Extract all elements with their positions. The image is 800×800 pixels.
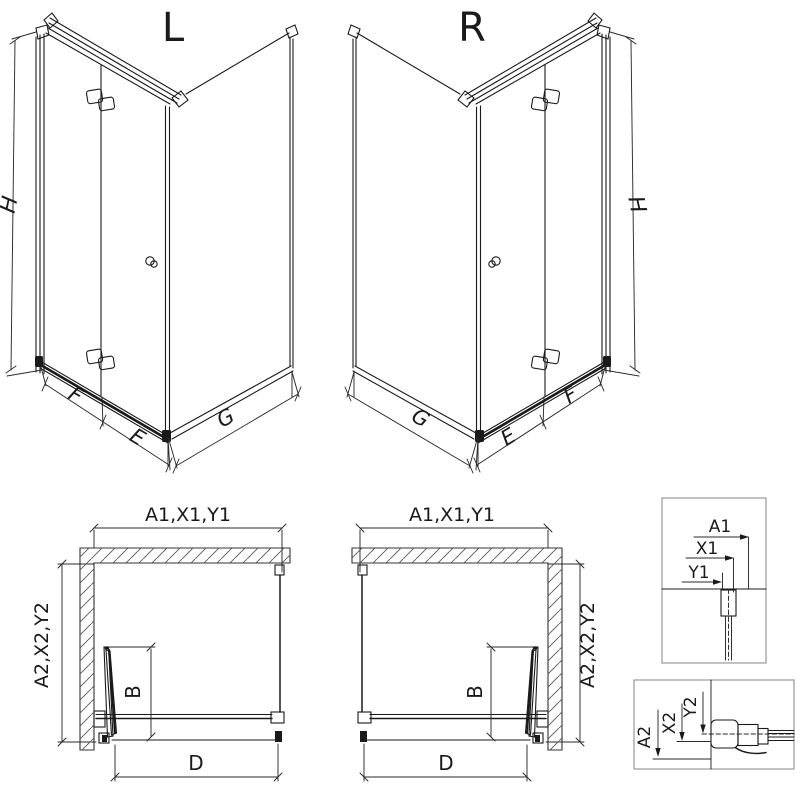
- wall-profile: [36, 25, 49, 374]
- side-panel: [168, 25, 298, 467]
- dim-label-d-left: D: [188, 751, 203, 775]
- perspective-view-right: [345, 13, 640, 473]
- wall-profile-detail-bottom: [634, 680, 794, 769]
- dim-label-e-left: E: [126, 423, 150, 451]
- perspective-view-left: [6, 13, 301, 473]
- dim-label-d-right: D: [438, 751, 453, 775]
- dim-label-e-right: E: [497, 423, 521, 451]
- wall-hatch-right: [352, 548, 562, 750]
- door-knob: [146, 257, 157, 267]
- detail-label-x1: X1: [696, 539, 718, 559]
- detail-label-y2: Y2: [681, 696, 701, 718]
- dim-label-a2x2y2-left: A2,X2,Y2: [31, 602, 53, 688]
- variant-label-right: R: [458, 5, 486, 51]
- detail-label-x2: X2: [660, 712, 680, 734]
- side-panel-plan: [271, 565, 284, 742]
- wall-hatch-left: [80, 548, 290, 750]
- spec-sheet: L H F E G R H F E G A1,X1,Y1 A2,X2,Y2 B …: [0, 0, 800, 800]
- technical-diagram: L H F E G R H F E G A1,X1,Y1 A2,X2,Y2 B …: [0, 0, 800, 800]
- folding-door: [46, 33, 170, 426]
- dim-label-a1x1y1-left: A1,X1,Y1: [145, 504, 231, 526]
- detail-label-a2: A2: [635, 726, 655, 748]
- bathroom-wall: [80, 548, 290, 750]
- dim-label-h-left: H: [0, 194, 24, 215]
- dim-label-f-left: F: [64, 382, 88, 409]
- variant-label-left: L: [162, 5, 185, 51]
- dim-label-h-right: H: [622, 194, 650, 215]
- detail-label-a1: A1: [709, 517, 731, 537]
- corner-post: [166, 106, 170, 437]
- folded-door-plan: [104, 646, 117, 737]
- dim-label-b-right: B: [463, 685, 487, 699]
- dim-label-b-left: B: [121, 685, 145, 699]
- dimension-front: [41, 367, 172, 472]
- dim-label-a2x2y2-right: A2,X2,Y2: [577, 602, 599, 688]
- dim-label-a1x1y1-right: A1,X1,Y1: [409, 504, 495, 526]
- dim-label-f-right: F: [559, 381, 583, 408]
- rail-plan: [94, 711, 281, 743]
- detail-label-y1: Y1: [687, 563, 709, 583]
